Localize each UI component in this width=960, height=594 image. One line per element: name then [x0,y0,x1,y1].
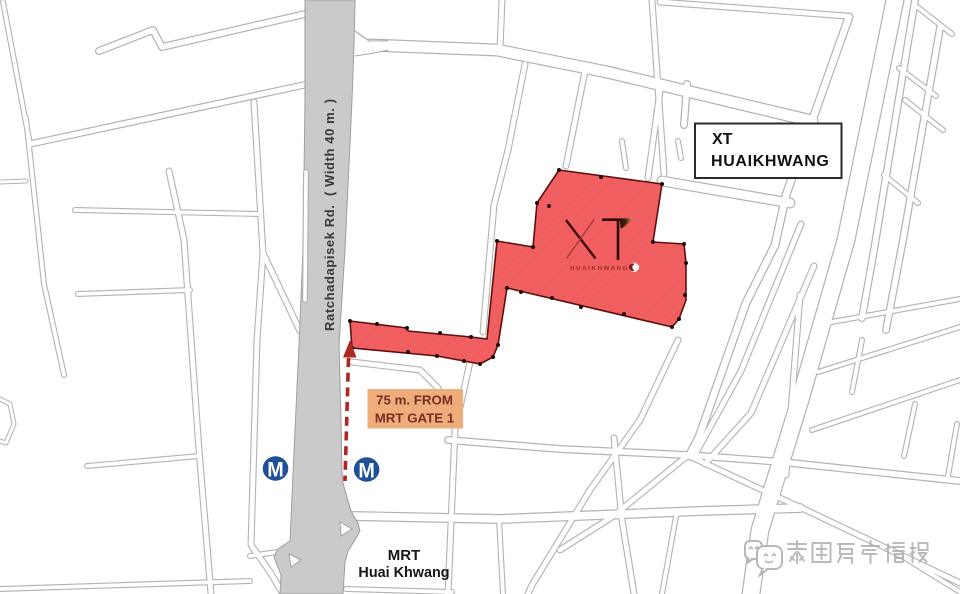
svg-text:Ratchadapisek Rd. ( Width 40: Ratchadapisek Rd. ( Width 40 m. ) [322,98,337,331]
svg-text:HUAIKHWANG: HUAIKHWANG [711,153,830,170]
svg-text:MRT GATE 1: MRT GATE 1 [375,411,455,426]
svg-text:75 m. FROM: 75 m. FROM [376,393,453,408]
svg-text:M: M [267,458,284,481]
svg-text:HUAIKHWANG: HUAIKHWANG [570,266,629,272]
svg-text:M: M [358,459,375,482]
svg-text:MRT: MRT [388,547,421,564]
svg-text:Huai Khwang: Huai Khwang [358,565,449,581]
svg-text:XT: XT [712,131,733,148]
